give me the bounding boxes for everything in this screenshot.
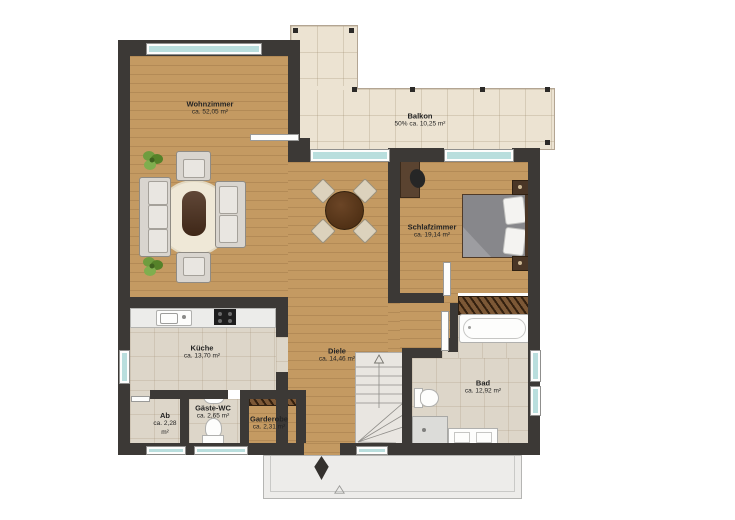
balcony-sliding-door — [310, 149, 390, 162]
window-glass — [313, 152, 387, 159]
bathtub-drain — [468, 326, 471, 329]
room-label-garderobe: Garderobe ca. 2,31 m² — [250, 414, 288, 432]
room-label-kueche: Küche ca. 13,70 m² — [184, 343, 220, 361]
kitchen-cooktop — [214, 309, 236, 325]
bad-door-leaf — [441, 311, 449, 351]
wall-left — [118, 40, 130, 455]
bedroom-door-leaf — [443, 262, 451, 296]
room-name: Küche — [184, 343, 220, 352]
wall-garderobe-north — [242, 390, 298, 399]
room-name: Schlafzimmer — [408, 222, 457, 231]
armchair-cushion — [183, 257, 205, 276]
wall-balcony-east — [512, 148, 540, 162]
plant-icon — [141, 149, 165, 173]
shower — [412, 416, 448, 445]
porch-marker-icon — [334, 485, 345, 494]
room-name: Ab — [149, 411, 181, 420]
window-glass — [197, 449, 245, 452]
wall-livingroom-east — [288, 40, 300, 138]
room-name: Garderobe — [250, 414, 288, 423]
dining-table — [325, 191, 364, 230]
nightstand-knob — [518, 261, 522, 265]
wall-living-bedroom-divider — [388, 160, 400, 303]
wall-ab-wc-north — [150, 390, 228, 399]
vanity-sink — [454, 432, 470, 443]
bedroom-wardrobe — [458, 296, 530, 315]
sofa-cushion — [219, 186, 238, 214]
wall-bad-north — [402, 348, 442, 358]
room-name: Gäste-WC — [195, 403, 231, 412]
room-area: ca. 13,70 m² — [184, 353, 220, 361]
ab-window — [146, 446, 186, 455]
room-area: ca. 14,46 m² — [319, 356, 355, 364]
balcony-post — [352, 87, 357, 92]
ab-door-leaf — [131, 396, 150, 402]
wall-stairs-bad-divider — [402, 352, 412, 443]
living-room-window — [146, 43, 262, 55]
nightstand-knob — [518, 185, 522, 189]
balcony-post — [545, 140, 550, 145]
room-name: Diele — [319, 346, 355, 355]
room-area: ca. 19,14 m² — [408, 232, 457, 240]
armchair-bottom — [176, 252, 211, 283]
room-label-gaeste-wc: Gäste-WC ca. 2,65 m² — [195, 403, 231, 421]
wc-window — [194, 446, 248, 455]
wall-bedroom-south — [400, 293, 444, 303]
burner-dots — [218, 312, 222, 316]
kitchen-sink — [156, 310, 192, 326]
wall-kitchen-north — [118, 297, 288, 308]
bad-window-upper — [530, 350, 541, 382]
room-area: ca. 2,65 m² — [195, 413, 231, 421]
sofa-cushion — [148, 181, 168, 205]
sofa-cushion — [148, 205, 168, 229]
bad-window-lower — [530, 386, 541, 416]
sofa-cushion — [219, 215, 238, 243]
sink-faucet — [182, 315, 186, 319]
room-label-diele: Diele ca. 14,46 m² — [319, 346, 355, 364]
shower-drain — [422, 428, 426, 432]
window-glass — [149, 46, 259, 52]
balcony-floor-upper — [290, 25, 358, 90]
room-label-bad: Bad ca. 12,92 m² — [465, 378, 501, 396]
sliding-door-leaf — [250, 134, 299, 141]
front-door-sill — [304, 443, 340, 455]
vanity-sink — [476, 432, 492, 443]
stairwell-window — [356, 446, 388, 455]
window-glass — [533, 389, 538, 413]
bed-duvet-fold — [463, 227, 491, 257]
window-glass — [533, 353, 538, 379]
balcony-post — [293, 28, 298, 33]
kueche-door-gap — [276, 337, 288, 372]
room-name: Balkon — [395, 111, 446, 120]
staircase — [355, 352, 404, 445]
room-area: ca. 52,05 m² — [187, 109, 234, 117]
stairs-direction-arrow-icon — [375, 355, 384, 363]
wall-nook-tub-divider — [450, 303, 458, 345]
room-label-wohnzimmer: Wohnzimmer ca. 52,05 m² — [187, 99, 234, 117]
wall-garderobe-diele-divider — [296, 390, 306, 443]
armchair-top — [176, 151, 211, 181]
staircase-treads — [356, 353, 403, 444]
bed-pillow — [502, 196, 526, 225]
sofa-right — [215, 181, 246, 248]
room-area: 50% ca. 10,25 m² — [395, 121, 446, 129]
bed — [462, 194, 530, 258]
wall-kitchen-east-lower — [276, 372, 288, 443]
wall-kitchen-east-upper — [276, 297, 288, 337]
window-glass — [447, 152, 511, 159]
wall-wc-garderobe-divider — [240, 390, 249, 443]
balcony-post — [545, 87, 550, 92]
kitchen-counter — [130, 308, 276, 328]
bedroom-window — [444, 149, 514, 162]
room-area: ca. 12,92 m² — [465, 388, 501, 396]
sofa-cushion — [148, 229, 168, 253]
room-name: Wohnzimmer — [187, 99, 234, 108]
room-area: ca. 2,28 m² — [149, 421, 181, 437]
room-area: ca. 2,31 m² — [250, 424, 288, 432]
entrance-porch — [263, 455, 522, 499]
window-glass — [359, 449, 385, 452]
room-name: Bad — [465, 378, 501, 387]
floor-plan-canvas: Wohnzimmer ca. 52,05 m² Balkon 50% ca. 1… — [0, 0, 735, 520]
balcony-post — [480, 87, 485, 92]
bad-toilet-bowl — [420, 389, 439, 407]
sofa-left — [139, 177, 171, 257]
balcony-floor-joint — [292, 86, 354, 90]
room-label-balkon: Balkon 50% ca. 10,25 m² — [395, 111, 446, 129]
porch-step-line — [270, 456, 515, 492]
sink-basin — [160, 313, 178, 324]
room-label-ab: Ab ca. 2,28 m² — [149, 411, 181, 437]
bathtub-inner — [463, 318, 526, 339]
armchair-cushion — [183, 159, 205, 178]
room-label-schlafzimmer: Schlafzimmer ca. 19,14 m² — [408, 222, 457, 240]
kitchen-window — [119, 350, 130, 384]
wall-ab-wc-divider — [180, 395, 189, 443]
window-glass — [149, 449, 183, 452]
wall-livingroom-corner — [288, 138, 310, 162]
coffee-table — [182, 191, 206, 236]
bathtub — [459, 314, 530, 343]
balcony-post — [410, 87, 415, 92]
plant-icon — [141, 255, 165, 279]
window-glass — [122, 353, 127, 381]
balcony-post — [349, 28, 354, 33]
bed-pillow — [502, 227, 526, 256]
